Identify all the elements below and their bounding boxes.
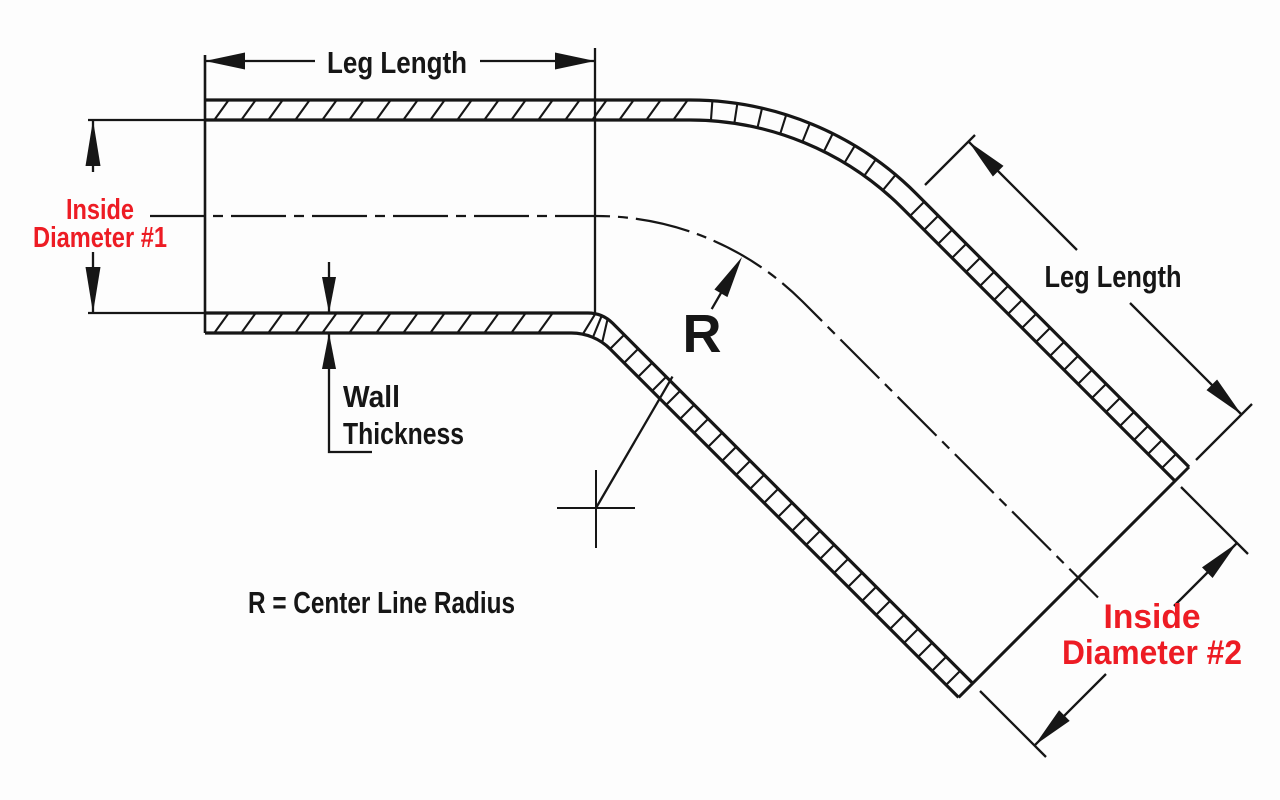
upper-leg-hatch xyxy=(910,202,1176,468)
inside-diameter-2-label-line1: Inside xyxy=(1104,598,1201,636)
centerline xyxy=(150,216,1098,598)
radius-legend-label: R = Center Line Radius xyxy=(248,585,515,620)
radius-arrow xyxy=(714,257,742,297)
dim-inside-diameter-2: Inside Diameter #2 xyxy=(980,487,1248,757)
wall-thickness-down-arrow xyxy=(322,277,336,313)
leg-length-top-label: Leg Length xyxy=(327,45,467,80)
wall-thickness-label-line2: Thickness xyxy=(343,416,464,451)
lower-leg-hatch xyxy=(583,314,960,685)
dim-wall-thickness: Wall Thickness xyxy=(322,262,464,452)
inside-diameter-2-label-line2: Diameter #2 xyxy=(1062,634,1242,672)
radius-center-cross xyxy=(557,470,635,548)
leg-length-top-left-arrow xyxy=(205,53,245,70)
id1-up-arrow xyxy=(86,120,101,166)
wall-thickness-label-line1: Wall xyxy=(343,379,400,414)
bottom-wall-inner-edge xyxy=(205,313,973,683)
leg-length-right-lower-extension xyxy=(1196,404,1252,460)
diagram-canvas: Leg Length Inside Diameter #1 Wall Thick… xyxy=(0,0,1280,800)
inside-diameter-1-label-line2: Diameter #1 xyxy=(33,222,167,254)
bottom-wall-hatch xyxy=(215,314,552,332)
leg-length-right-label: Leg Length xyxy=(1045,259,1182,294)
bottom-wall-outer-edge xyxy=(205,333,959,697)
radius-symbol-label: R xyxy=(683,304,722,364)
elbow-diagram: Leg Length Inside Diameter #1 Wall Thick… xyxy=(0,0,1280,800)
dim-leg-length-right: Leg Length xyxy=(925,135,1252,460)
dim-leg-length-top: Leg Length xyxy=(205,45,595,313)
leg-length-right-upper-extension xyxy=(925,135,975,185)
id2-extension-from-lower-corner xyxy=(980,691,1046,757)
leg-length-top-right-arrow xyxy=(555,53,595,70)
id2-extension-from-upper-corner xyxy=(1181,487,1248,554)
top-wall-hatch xyxy=(215,101,687,119)
id1-down-arrow xyxy=(86,267,101,313)
